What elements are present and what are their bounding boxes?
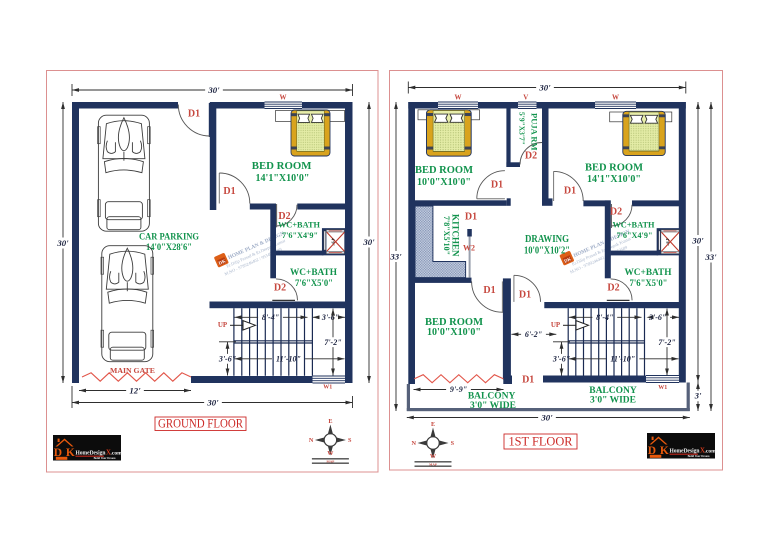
svg-text:7'8"X5'10": 7'8"X5'10" xyxy=(442,216,451,255)
svg-text:7'-2": 7'-2" xyxy=(324,338,341,347)
svg-text:30': 30' xyxy=(691,235,704,245)
svg-text:7'6"X5'0": 7'6"X5'0" xyxy=(295,278,333,288)
svg-text:BED ROOM: BED ROOM xyxy=(252,160,312,172)
svg-text:10'0"X10'2": 10'0"X10'2" xyxy=(524,246,570,257)
svg-text:W1: W1 xyxy=(323,384,332,390)
svg-text:D1: D1 xyxy=(522,374,534,385)
svg-text:D1: D1 xyxy=(223,186,235,197)
svg-text:D2: D2 xyxy=(525,151,537,162)
svg-text:WC+BATH: WC+BATH xyxy=(290,268,338,278)
svg-text:33': 33' xyxy=(704,252,717,262)
svg-text:BALCONY: BALCONY xyxy=(589,386,637,396)
svg-text:1ST FLOOR: 1ST FLOOR xyxy=(509,435,574,449)
svg-text:14'1"X10'0": 14'1"X10'0" xyxy=(587,174,641,185)
svg-text:30': 30' xyxy=(56,238,69,248)
svg-text:BALCONY: BALCONY xyxy=(468,391,516,401)
svg-text:3'-6": 3'-6" xyxy=(648,313,666,322)
svg-text:V: V xyxy=(523,94,528,102)
svg-text:MAIN GATE: MAIN GATE xyxy=(110,367,155,375)
svg-text:7'6"X5'0": 7'6"X5'0" xyxy=(630,278,668,288)
svg-text:3': 3' xyxy=(694,391,702,401)
svg-text:10'0"X10'0": 10'0"X10'0" xyxy=(417,177,471,188)
svg-text:BED ROOM: BED ROOM xyxy=(585,162,643,173)
svg-text:11'-10": 11'-10" xyxy=(610,354,635,363)
svg-text:8'-4": 8'-4" xyxy=(262,313,279,322)
svg-text:3'0" WIDE: 3'0" WIDE xyxy=(590,396,636,406)
svg-text:14'1"X10'0": 14'1"X10'0" xyxy=(256,173,310,184)
svg-text:D1: D1 xyxy=(491,180,503,191)
svg-text:D2: D2 xyxy=(274,283,286,294)
svg-text:3'-6": 3'-6" xyxy=(552,354,570,363)
svg-text:12': 12' xyxy=(129,385,141,395)
svg-text:7'6"X4'9": 7'6"X4'9" xyxy=(617,231,653,240)
svg-text:30': 30' xyxy=(538,82,551,92)
svg-text:D1: D1 xyxy=(564,186,576,197)
svg-text:D1: D1 xyxy=(465,212,477,223)
svg-text:W: W xyxy=(455,94,462,102)
svg-text:9'-9": 9'-9" xyxy=(450,385,467,394)
svg-text:BED ROOM: BED ROOM xyxy=(415,165,473,176)
svg-text:W: W xyxy=(612,94,619,102)
svg-text:W2: W2 xyxy=(463,244,475,253)
svg-text:UP: UP xyxy=(551,321,561,329)
svg-text:WC+BATH: WC+BATH xyxy=(625,268,673,278)
svg-text:W: W xyxy=(280,94,287,102)
svg-text:33': 33' xyxy=(389,251,402,261)
svg-text:30': 30' xyxy=(206,397,219,407)
svg-text:3'-6": 3'-6" xyxy=(218,354,236,363)
svg-text:WC+BATH: WC+BATH xyxy=(613,220,655,230)
svg-text:30': 30' xyxy=(362,237,375,247)
svg-text:D2: D2 xyxy=(610,207,622,218)
svg-text:14'0"X28'6": 14'0"X28'6" xyxy=(146,242,192,252)
svg-text:11'-10": 11'-10" xyxy=(276,354,301,363)
svg-text:7'6"X4'9": 7'6"X4'9" xyxy=(282,231,318,240)
svg-text:D1: D1 xyxy=(519,290,531,301)
svg-text:3'-6": 3'-6" xyxy=(321,313,339,322)
svg-text:8'-4": 8'-4" xyxy=(596,313,613,322)
svg-text:5'9"X3'7": 5'9"X3'7" xyxy=(518,112,527,145)
svg-text:D2: D2 xyxy=(607,283,619,294)
svg-text:PUJA RM: PUJA RM xyxy=(530,113,540,151)
svg-text:10'0"X10'0": 10'0"X10'0" xyxy=(427,327,481,338)
svg-text:GROUND FLOOR: GROUND FLOOR xyxy=(158,417,244,431)
svg-text:30': 30' xyxy=(540,412,553,422)
svg-text:6'-2": 6'-2" xyxy=(525,330,542,339)
svg-text:DRAWING: DRAWING xyxy=(525,234,569,245)
svg-text:WC+BATH: WC+BATH xyxy=(278,220,320,230)
svg-text:D1: D1 xyxy=(188,109,200,120)
svg-text:30': 30' xyxy=(207,85,220,95)
svg-text:3'0" WIDE: 3'0" WIDE xyxy=(470,401,516,411)
svg-text:7'-2": 7'-2" xyxy=(658,338,675,347)
svg-text:UP: UP xyxy=(218,321,228,329)
svg-text:KITCHEN: KITCHEN xyxy=(451,214,461,257)
svg-text:W1: W1 xyxy=(658,385,667,391)
svg-text:D1: D1 xyxy=(483,285,495,296)
